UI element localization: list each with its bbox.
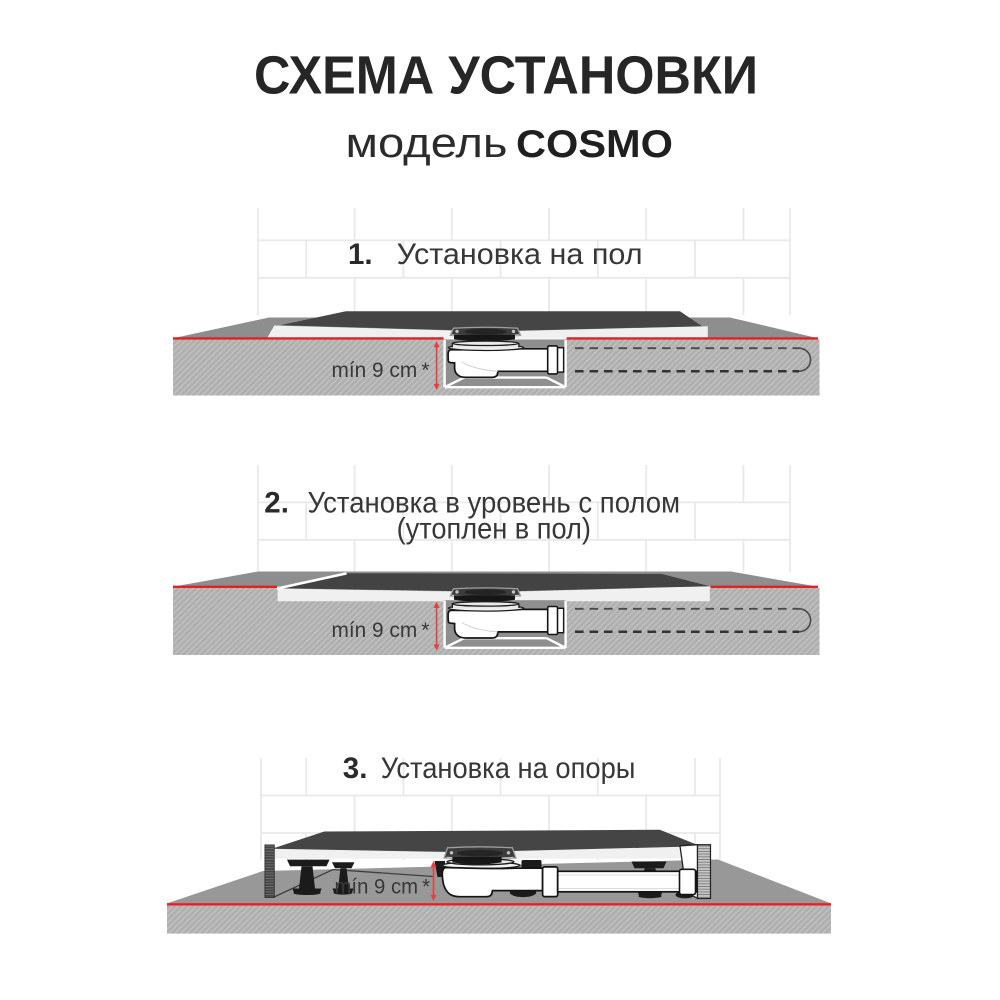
svg-text:Установка на опоры: Установка на опоры — [381, 752, 636, 785]
svg-text:(утоплен в пол): (утоплен в пол) — [397, 512, 591, 545]
svg-text:3.: 3. — [343, 752, 368, 785]
svg-text:Установка на пол: Установка на пол — [397, 238, 643, 271]
svg-text:COSMO: COSMO — [516, 123, 673, 166]
svg-text:СХЕМА УСТАНОВКИ: СХЕМА УСТАНОВКИ — [254, 46, 758, 106]
svg-text:mín 9 cm *: mín 9 cm * — [332, 359, 430, 382]
svg-text:mín 9 cm *: mín 9 cm * — [332, 619, 430, 642]
svg-text:1.: 1. — [348, 238, 373, 271]
svg-text:mín 9 cm *: mín 9 cm * — [335, 875, 431, 898]
svg-text:2.: 2. — [264, 486, 289, 519]
svg-text:модель: модель — [346, 119, 508, 166]
